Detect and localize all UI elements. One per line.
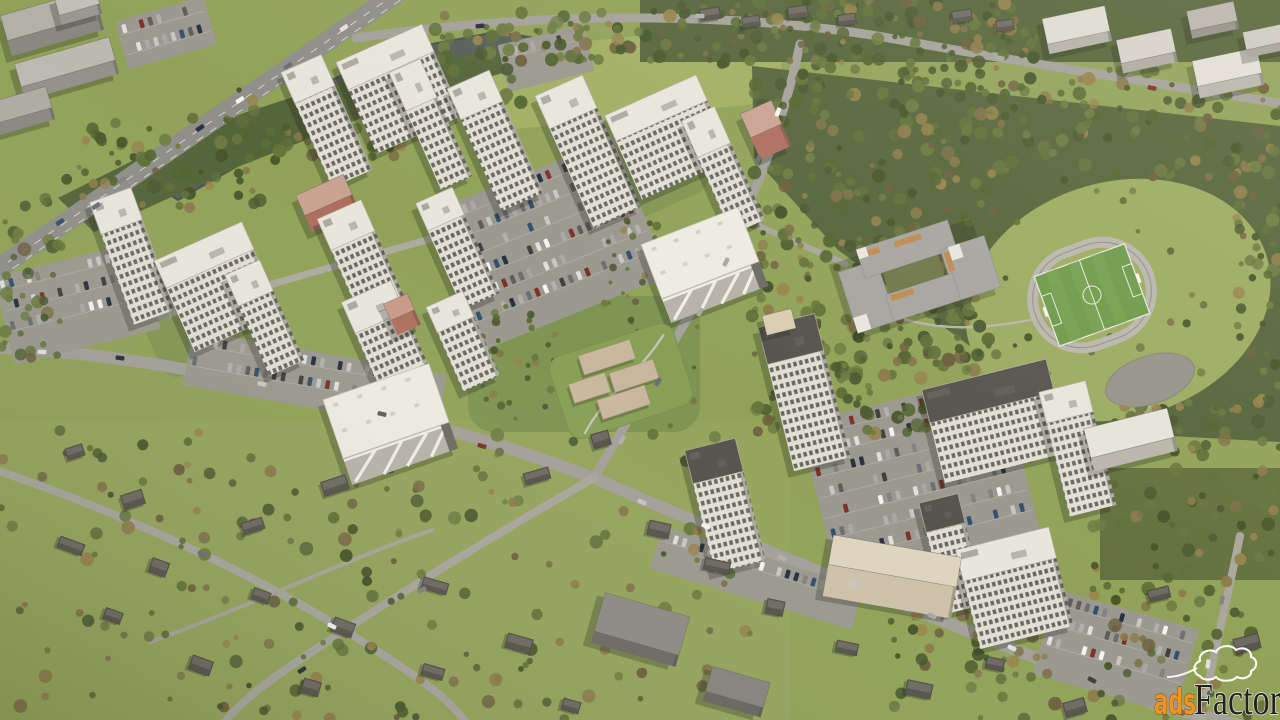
light-overlay [0,0,1280,720]
watermark-factory-text: Factory [1194,675,1280,720]
watermark-ads-text: ads [1154,682,1196,720]
aerial-city-render: ads Factory [0,0,1280,720]
aerial-render-screenshot: ads Factory [0,0,1280,720]
